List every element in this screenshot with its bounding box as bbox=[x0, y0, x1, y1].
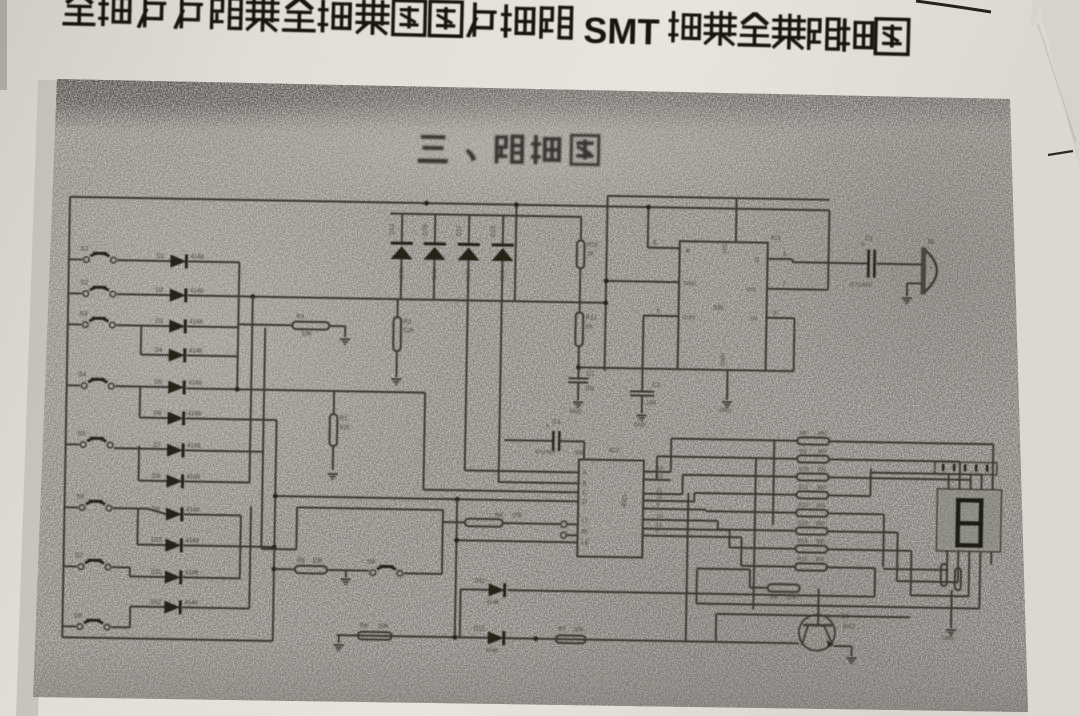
svg-text:R12: R12 bbox=[798, 503, 808, 509]
svg-text:10K: 10K bbox=[312, 559, 323, 565]
svg-text:GND: GND bbox=[574, 450, 586, 456]
svg-text:10K: 10K bbox=[301, 331, 312, 337]
svg-text:C4: C4 bbox=[553, 420, 561, 426]
svg-text:R15: R15 bbox=[797, 557, 807, 563]
svg-text:D11: D11 bbox=[475, 579, 486, 585]
svg-text:4148: 4148 bbox=[185, 570, 199, 576]
svg-text:4148: 4148 bbox=[190, 288, 204, 294]
svg-text:D4: D4 bbox=[155, 348, 163, 354]
svg-text:R7: R7 bbox=[558, 627, 566, 633]
svg-text:S1: S1 bbox=[81, 246, 89, 253]
svg-text:DIS: DIS bbox=[747, 287, 757, 293]
svg-text:IC2: IC2 bbox=[609, 447, 620, 454]
svg-text:TRIG: TRIG bbox=[683, 281, 696, 287]
svg-text:CON: CON bbox=[682, 315, 694, 321]
svg-text:300: 300 bbox=[815, 539, 824, 545]
svg-text:D13: D13 bbox=[390, 223, 396, 235]
svg-text:4148: 4148 bbox=[187, 443, 201, 449]
svg-text:+: + bbox=[929, 266, 933, 272]
svg-text:R6: R6 bbox=[360, 624, 368, 630]
svg-text:GND: GND bbox=[942, 636, 954, 642]
svg-text:D: D bbox=[582, 499, 587, 505]
svg-text:300: 300 bbox=[574, 627, 585, 633]
svg-text:4148: 4148 bbox=[189, 319, 203, 325]
svg-text:51K: 51K bbox=[403, 328, 414, 334]
svg-text:4148: 4148 bbox=[186, 507, 200, 513]
svg-text:D6: D6 bbox=[154, 411, 162, 417]
svg-text:GND: GND bbox=[719, 408, 731, 414]
svg-text:D3: D3 bbox=[155, 319, 163, 325]
svg-text:4148: 4148 bbox=[486, 600, 498, 606]
svg-text:51K: 51K bbox=[339, 425, 350, 431]
svg-text:SMT: SMT bbox=[583, 10, 660, 53]
svg-text:S8: S8 bbox=[74, 612, 82, 619]
svg-text:4148: 4148 bbox=[466, 269, 472, 281]
svg-text:4148: 4148 bbox=[184, 600, 198, 606]
svg-text:BL: BL bbox=[928, 240, 936, 246]
svg-text:4148: 4148 bbox=[399, 268, 405, 280]
svg-text:S9: S9 bbox=[367, 559, 375, 566]
svg-text:R3: R3 bbox=[296, 314, 304, 320]
svg-text:D17: D17 bbox=[457, 225, 463, 237]
svg-text:VCC: VCC bbox=[723, 242, 729, 254]
svg-text:+: + bbox=[545, 423, 549, 430]
svg-text:D12: D12 bbox=[150, 600, 162, 606]
svg-text:D5: D5 bbox=[154, 380, 162, 386]
svg-text:R: R bbox=[686, 249, 691, 255]
svg-text:300: 300 bbox=[815, 557, 824, 563]
svg-text:R11: R11 bbox=[798, 485, 808, 491]
svg-text:D10: D10 bbox=[151, 538, 163, 544]
svg-text:D2: D2 bbox=[156, 288, 164, 294]
svg-text:LT: LT bbox=[582, 518, 589, 524]
svg-text:1K: 1K bbox=[585, 325, 592, 331]
svg-text:D11: D11 bbox=[151, 570, 162, 576]
svg-text:4148: 4148 bbox=[432, 269, 438, 281]
svg-text:300: 300 bbox=[817, 431, 826, 437]
svg-text:104: 104 bbox=[646, 401, 657, 407]
svg-text:10K: 10K bbox=[512, 513, 523, 519]
svg-text:LE: LE bbox=[581, 540, 588, 546]
svg-text:300: 300 bbox=[816, 521, 825, 527]
svg-text:S7: S7 bbox=[75, 552, 83, 559]
svg-text:R12: R12 bbox=[585, 316, 597, 322]
svg-text:A: A bbox=[583, 470, 587, 476]
svg-text:S3: S3 bbox=[79, 311, 87, 318]
svg-text:D8: D8 bbox=[153, 474, 161, 480]
svg-text:300: 300 bbox=[816, 503, 825, 509]
svg-text:555: 555 bbox=[714, 306, 725, 312]
svg-text:R8: R8 bbox=[799, 431, 806, 437]
svg-text:R4: R4 bbox=[495, 513, 503, 519]
svg-text:IC1: IC1 bbox=[771, 235, 782, 242]
svg-text:BI: BI bbox=[582, 529, 588, 535]
svg-text:R13: R13 bbox=[798, 521, 808, 527]
svg-text:S5: S5 bbox=[77, 430, 85, 437]
svg-text:4148: 4148 bbox=[188, 411, 202, 417]
svg-text:R1: R1 bbox=[340, 416, 348, 422]
svg-text:TH: TH bbox=[749, 316, 756, 322]
svg-text:R10: R10 bbox=[587, 243, 599, 249]
svg-text:D19: D19 bbox=[491, 225, 497, 237]
svg-text:+: + bbox=[929, 282, 933, 288]
svg-text:C: C bbox=[582, 490, 587, 496]
svg-text:300: 300 bbox=[816, 485, 825, 491]
svg-text:4511: 4511 bbox=[622, 494, 628, 508]
svg-text:1K: 1K bbox=[587, 252, 594, 258]
svg-text:Q: Q bbox=[754, 258, 759, 264]
svg-text:9013: 9013 bbox=[843, 624, 855, 630]
svg-text:GND: GND bbox=[570, 409, 582, 415]
svg-text:4148: 4148 bbox=[185, 538, 199, 544]
svg-text:D1: D1 bbox=[156, 254, 164, 260]
svg-text:C2: C2 bbox=[652, 383, 660, 389]
svg-text:4148: 4148 bbox=[190, 254, 204, 260]
svg-text:4148: 4148 bbox=[188, 380, 202, 386]
svg-text:R5: R5 bbox=[297, 558, 305, 564]
svg-text:300: 300 bbox=[817, 467, 826, 473]
svg-text:R2: R2 bbox=[403, 319, 411, 325]
svg-text:D15: D15 bbox=[423, 224, 429, 236]
svg-text:GND: GND bbox=[721, 354, 727, 366]
svg-text:C1: C1 bbox=[586, 372, 594, 378]
svg-text:S6: S6 bbox=[76, 493, 84, 500]
svg-text:R9: R9 bbox=[799, 449, 806, 455]
svg-text:4148: 4148 bbox=[485, 648, 497, 654]
svg-text:B: B bbox=[582, 481, 586, 487]
svg-text:R14: R14 bbox=[797, 539, 807, 545]
svg-text:D12: D12 bbox=[474, 627, 486, 633]
svg-text:R8: R8 bbox=[769, 595, 777, 601]
svg-text:4148: 4148 bbox=[187, 474, 201, 480]
svg-text:4148: 4148 bbox=[500, 270, 506, 282]
svg-text:C3: C3 bbox=[865, 236, 873, 242]
svg-text:Q1: Q1 bbox=[841, 614, 850, 620]
svg-text:4.7u/16V: 4.7u/16V bbox=[850, 282, 872, 288]
svg-text:GND: GND bbox=[634, 422, 646, 428]
svg-text:S4: S4 bbox=[78, 371, 86, 378]
svg-text:47u/16V: 47u/16V bbox=[535, 450, 556, 456]
svg-text:4148: 4148 bbox=[189, 348, 203, 354]
svg-text:300: 300 bbox=[817, 449, 826, 455]
svg-text:R10: R10 bbox=[799, 467, 809, 473]
svg-text:10K: 10K bbox=[786, 595, 797, 601]
svg-text:103: 103 bbox=[584, 386, 595, 392]
svg-text:S2: S2 bbox=[80, 280, 88, 287]
svg-text:10K: 10K bbox=[378, 624, 389, 630]
